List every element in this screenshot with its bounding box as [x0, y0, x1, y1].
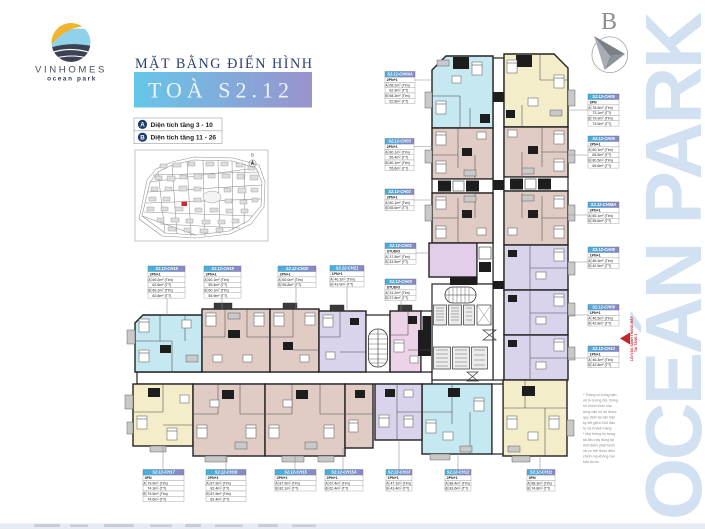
- svg-text:B: B: [589, 363, 591, 367]
- svg-text:55.9m² (TT): 55.9m² (TT): [208, 294, 227, 298]
- svg-text:tư và Khách hàng.: tư và Khách hàng.: [583, 427, 612, 431]
- svg-text:S2.12-CH06: S2.12-CH06: [592, 136, 615, 141]
- svg-text:80.1m² (Tim): 80.1m² (Tim): [592, 148, 612, 152]
- svg-text:68.2m² (Tim): 68.2m² (Tim): [389, 83, 409, 87]
- svg-text:S2.12-CH01: S2.12-CH01: [389, 243, 412, 248]
- svg-text:quy định tại văn bản: quy định tại văn bản: [583, 415, 615, 419]
- svg-text:B: B: [331, 283, 333, 287]
- svg-text:S2.12-CH08A: S2.12-CH08A: [591, 202, 617, 207]
- svg-text:2PN+1: 2PN+1: [387, 145, 398, 149]
- svg-text:B: B: [205, 289, 207, 293]
- svg-text:2PN+1: 2PN+1: [447, 476, 458, 480]
- svg-text:73.9m² (TT): 73.9m² (TT): [592, 122, 611, 126]
- svg-text:S2.12-CH11: S2.12-CH11: [530, 470, 553, 475]
- svg-text:74.6m² (TT): 74.6m² (TT): [147, 497, 166, 501]
- svg-text:S2.12-CH10: S2.12-CH10: [592, 346, 615, 351]
- svg-text:MẶT BẰNG ĐIỂN HÌNH: MẶT BẰNG ĐIỂN HÌNH: [135, 55, 313, 72]
- svg-text:88.3m² (Tim): 88.3m² (Tim): [531, 481, 551, 485]
- svg-text:46.5m² (Tim): 46.5m² (Tim): [592, 316, 612, 320]
- svg-text:78.9m² (Tim): 78.9m² (Tim): [592, 106, 612, 110]
- svg-text:65.5m² (TT): 65.5m² (TT): [592, 153, 611, 157]
- svg-text:B: B: [251, 153, 254, 158]
- svg-text:46.1m² (Tim): 46.1m² (Tim): [334, 277, 354, 281]
- svg-text:B: B: [386, 206, 388, 210]
- svg-text:S2.12-CH03: S2.12-CH03: [389, 279, 412, 284]
- svg-text:VINHOMES: VINHOMES: [35, 65, 107, 76]
- svg-text:2PN+1: 2PN+1: [590, 143, 601, 147]
- svg-text:3PN: 3PN: [590, 101, 597, 105]
- svg-text:B: B: [601, 9, 617, 35]
- svg-text:S2.12-CH18: S2.12-CH18: [155, 266, 178, 271]
- svg-text:B: B: [386, 161, 388, 165]
- svg-text:74.8m² (TT): 74.8m² (TT): [531, 487, 550, 491]
- svg-text:B: B: [387, 487, 389, 491]
- svg-text:62.9m² (TT): 62.9m² (TT): [389, 89, 408, 93]
- svg-text:62.6m² (TT): 62.6m² (TT): [152, 283, 171, 287]
- svg-text:B: B: [140, 134, 145, 141]
- svg-text:số chính thức của: số chính thức của: [583, 404, 612, 408]
- svg-text:2PN+1: 2PN+1: [590, 209, 601, 213]
- svg-text:S2.12-CH15: S2.12-CH15: [284, 470, 307, 475]
- svg-text:80.1m² (Tim): 80.1m² (Tim): [389, 161, 409, 165]
- svg-text:chỉnh mà không cần: chỉnh mà không cần: [583, 455, 615, 459]
- svg-text:S2.12-CH04A: S2.12-CH04A: [387, 72, 413, 77]
- svg-text:B: B: [276, 487, 278, 491]
- svg-text:27.8m² (TT): 27.8m² (TT): [389, 296, 408, 300]
- svg-text:ocean park: ocean park: [47, 76, 97, 83]
- svg-text:B: B: [149, 289, 151, 293]
- svg-text:65.1m² (Tim): 65.1m² (Tim): [592, 214, 612, 218]
- svg-text:79.9m² (Tim): 79.9m² (Tim): [592, 117, 612, 121]
- svg-text:2PN+1: 2PN+1: [387, 196, 398, 200]
- svg-text:62.4m² (TT): 62.4m² (TT): [329, 487, 348, 491]
- svg-text:vẽ là tương đối, thông: vẽ là tương đối, thông: [583, 399, 618, 403]
- svg-text:37.5m² (Tim): 37.5m² (Tim): [389, 255, 409, 259]
- svg-text:82.1m² (TT): 82.1m² (TT): [279, 487, 298, 491]
- svg-text:55.6m² (TT): 55.6m² (TT): [389, 166, 408, 170]
- svg-text:55.8m² (TT): 55.8m² (TT): [282, 283, 301, 287]
- svg-text:TOÀ S2.12: TOÀ S2.12: [148, 78, 294, 103]
- svg-text:62.8m² (TT): 62.8m² (TT): [389, 99, 408, 103]
- svg-text:43.4m² (TT): 43.4m² (TT): [390, 487, 409, 491]
- svg-text:42.8m² (TT): 42.8m² (TT): [592, 363, 611, 367]
- svg-text:60.1m² (Tim): 60.1m² (Tim): [208, 278, 228, 282]
- svg-text:OCEÁN PARK: OCEÁN PARK: [629, 11, 705, 520]
- svg-text:68.3m² (Tim): 68.3m² (Tim): [389, 94, 409, 98]
- svg-text:2PN+1: 2PN+1: [206, 273, 217, 277]
- svg-text:46.3m² (Tim): 46.3m² (Tim): [592, 358, 612, 362]
- svg-text:1PN+1: 1PN+1: [388, 476, 399, 480]
- svg-text:S2.12-CH13: S2.12-CH13: [388, 470, 411, 475]
- svg-text:43.0m² (TT): 43.0m² (TT): [334, 283, 353, 287]
- svg-text:55.4m² (TT): 55.4m² (TT): [208, 283, 227, 287]
- svg-text:B: B: [386, 260, 388, 264]
- svg-text:S2.12-CH12: S2.12-CH12: [447, 470, 470, 475]
- svg-text:60.1m² (Tim): 60.1m² (Tim): [208, 289, 228, 293]
- svg-text:1PN+1: 1PN+1: [590, 311, 601, 315]
- svg-text:Diện tích tầng 11 - 26: Diện tích tầng 11 - 26: [151, 133, 217, 142]
- svg-text:B: B: [326, 487, 328, 491]
- svg-text:B: B: [279, 283, 281, 287]
- svg-text:1PN+1: 1PN+1: [590, 353, 601, 357]
- svg-text:42.9m² (TT): 42.9m² (TT): [592, 264, 611, 268]
- svg-text:A: A: [140, 122, 145, 129]
- svg-text:B: B: [589, 117, 591, 121]
- svg-text:80.1m² (Tim): 80.1m² (Tim): [389, 201, 409, 205]
- svg-text:88.4m² (Tim): 88.4m² (Tim): [449, 481, 469, 485]
- svg-text:1PN+1: 1PN+1: [332, 272, 343, 276]
- svg-text:S2.12-CH03: S2.12-CH03: [388, 139, 411, 144]
- svg-text:S2.12-CH15A: S2.12-CH15A: [331, 470, 357, 475]
- svg-text:TẠI TẦNG 1: TẠI TẦNG 1: [634, 334, 638, 352]
- svg-text:B: B: [528, 487, 530, 491]
- svg-text:B: B: [386, 94, 388, 98]
- svg-text:ký kết giữa Chủ đầu: ký kết giữa Chủ đầu: [583, 421, 615, 425]
- svg-text:B: B: [589, 264, 591, 268]
- svg-text:B: B: [589, 322, 591, 326]
- svg-text:87.9m² (Tim): 87.9m² (Tim): [279, 481, 299, 485]
- svg-text:từng căn hộ sẽ được: từng căn hộ sẽ được: [583, 410, 617, 414]
- svg-text:80.5m² (Tim): 80.5m² (Tim): [592, 159, 612, 163]
- svg-text:S2.12-CH19: S2.12-CH19: [211, 266, 234, 271]
- svg-text:B: B: [446, 487, 448, 491]
- svg-text:62.8m² (TT): 62.8m² (TT): [152, 294, 171, 298]
- svg-text:* Mọi thông tin trong: * Mọi thông tin trong: [583, 432, 615, 436]
- svg-text:2PN+1: 2PN+1: [327, 476, 338, 480]
- svg-text:3PN: 3PN: [145, 476, 152, 480]
- svg-text:1PN+1: 1PN+1: [590, 254, 601, 258]
- svg-text:33.5m² (TT): 33.5m² (TT): [389, 260, 408, 264]
- svg-text:82.4m² (TT): 82.4m² (TT): [210, 497, 229, 501]
- svg-text:báo trước.: báo trước.: [583, 460, 600, 464]
- svg-text:tài liệu này đúng tại: tài liệu này đúng tại: [583, 438, 614, 442]
- svg-text:31.2m² (Tim): 31.2m² (Tim): [389, 291, 409, 295]
- svg-text:S2.12-CH08: S2.12-CH08: [592, 247, 615, 252]
- svg-text:B: B: [386, 296, 388, 300]
- svg-text:87.9m² (Tim): 87.9m² (Tim): [210, 481, 230, 485]
- svg-text:73.1m² (TT): 73.1m² (TT): [592, 111, 611, 115]
- svg-text:55.6m² (TT): 55.6m² (TT): [592, 219, 611, 223]
- svg-text:69.2m² (Tim): 69.2m² (Tim): [152, 278, 172, 282]
- svg-text:B: B: [589, 159, 591, 163]
- svg-text:46.3m² (Tim): 46.3m² (Tim): [592, 259, 612, 263]
- svg-text:60.0m² (Tim): 60.0m² (Tim): [282, 278, 302, 282]
- svg-text:3PN: 3PN: [529, 476, 536, 480]
- svg-text:65.6m² (TT): 65.6m² (TT): [389, 206, 408, 210]
- svg-text:79.9m² (Tim): 79.9m² (Tim): [147, 481, 167, 485]
- svg-text:2PN+1: 2PN+1: [208, 476, 219, 480]
- svg-text:B: B: [589, 219, 591, 223]
- svg-text:2PN+1: 2PN+1: [150, 273, 161, 277]
- svg-text:S2.12-CH17: S2.12-CH17: [152, 470, 175, 475]
- svg-text:83.6m² (TT): 83.6m² (TT): [449, 487, 468, 491]
- svg-text:65.6m² (TT): 65.6m² (TT): [592, 164, 611, 168]
- svg-text:87.9m² (Tim): 87.9m² (Tim): [210, 492, 230, 496]
- svg-text:STUDIO: STUDIO: [387, 250, 401, 254]
- svg-text:Diện tích tầng 3 - 10: Diện tích tầng 3 - 10: [151, 120, 214, 129]
- svg-text:2PN+1: 2PN+1: [277, 476, 288, 480]
- svg-text:67.4m² (Tim): 67.4m² (Tim): [329, 481, 349, 485]
- svg-text:B: B: [207, 492, 209, 496]
- svg-text:và có thể được điều: và có thể được điều: [583, 449, 615, 453]
- svg-text:S2.12-CH09: S2.12-CH09: [592, 305, 615, 310]
- svg-text:82.4m² (TT): 82.4m² (TT): [210, 487, 229, 491]
- svg-text:S2.12-CH05: S2.12-CH05: [592, 94, 615, 99]
- svg-text:79.9m² (Tim): 79.9m² (Tim): [147, 492, 167, 496]
- svg-text:74.3m² (TT): 74.3m² (TT): [147, 487, 166, 491]
- svg-text:* Thông số trong bản: * Thông số trong bản: [583, 393, 617, 397]
- svg-text:2PN+1: 2PN+1: [280, 273, 291, 277]
- svg-text:thời điểm phát hành: thời điểm phát hành: [583, 443, 615, 447]
- svg-text:42.8m² (TT): 42.8m² (TT): [592, 322, 611, 326]
- svg-text:55.4m² (TT): 55.4m² (TT): [389, 156, 408, 160]
- svg-text:2PN+1: 2PN+1: [387, 78, 398, 82]
- svg-text:69.2m² (Tim): 69.2m² (Tim): [152, 289, 172, 293]
- svg-text:S2.12-CH21: S2.12-CH21: [336, 266, 359, 271]
- svg-text:S2.12-CH02: S2.12-CH02: [388, 189, 411, 194]
- svg-text:STUDIO: STUDIO: [387, 286, 401, 290]
- svg-text:80.1m² (Tim): 80.1m² (Tim): [389, 150, 409, 154]
- svg-text:B: B: [144, 492, 146, 496]
- svg-text:S2.12-CH20: S2.12-CH20: [286, 266, 309, 271]
- svg-text:S2.12-CH16: S2.12-CH16: [215, 470, 238, 475]
- svg-text:47.1m² (Tim): 47.1m² (Tim): [390, 481, 410, 485]
